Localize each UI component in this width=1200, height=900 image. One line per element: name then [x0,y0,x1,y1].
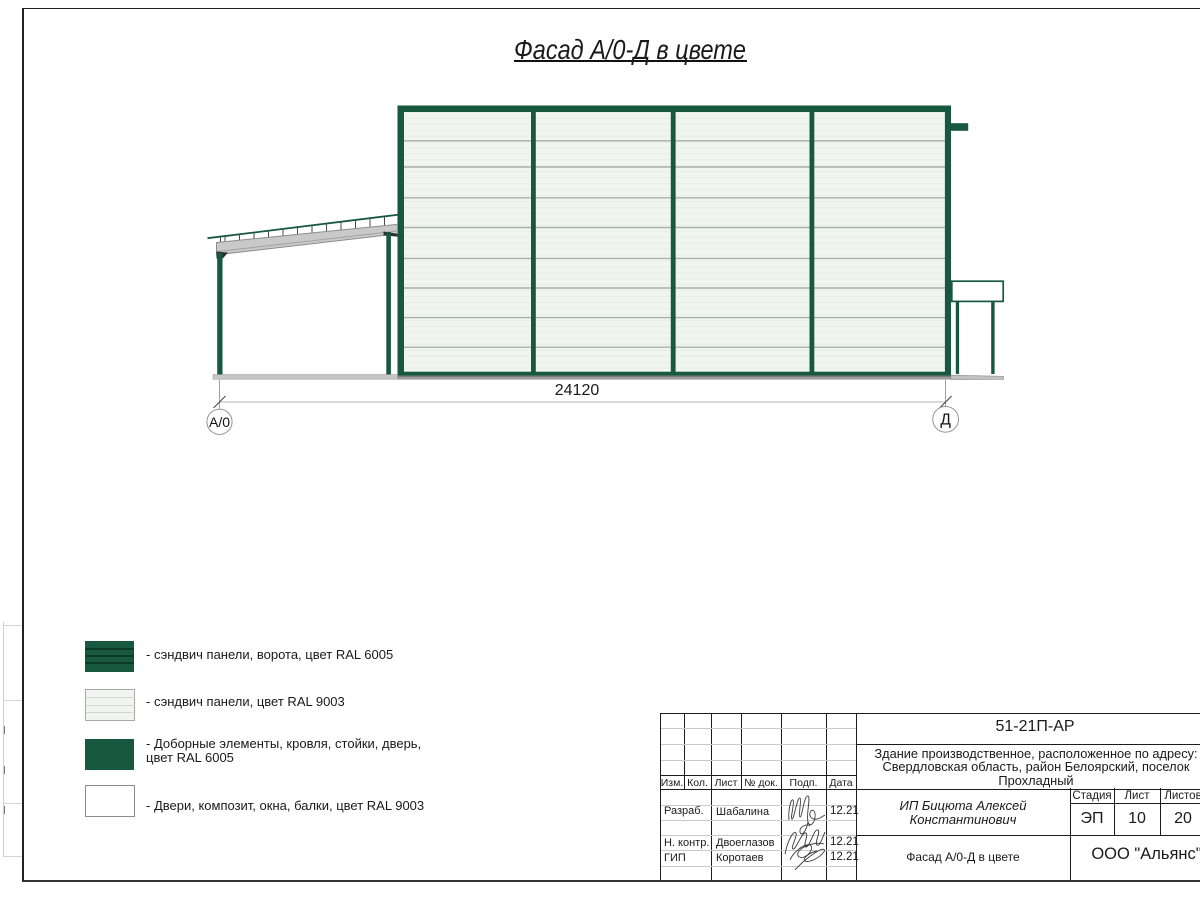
svg-text:24120: 24120 [555,382,600,399]
svg-text:Д: Д [940,412,951,429]
svg-text:А/0: А/0 [209,414,230,430]
